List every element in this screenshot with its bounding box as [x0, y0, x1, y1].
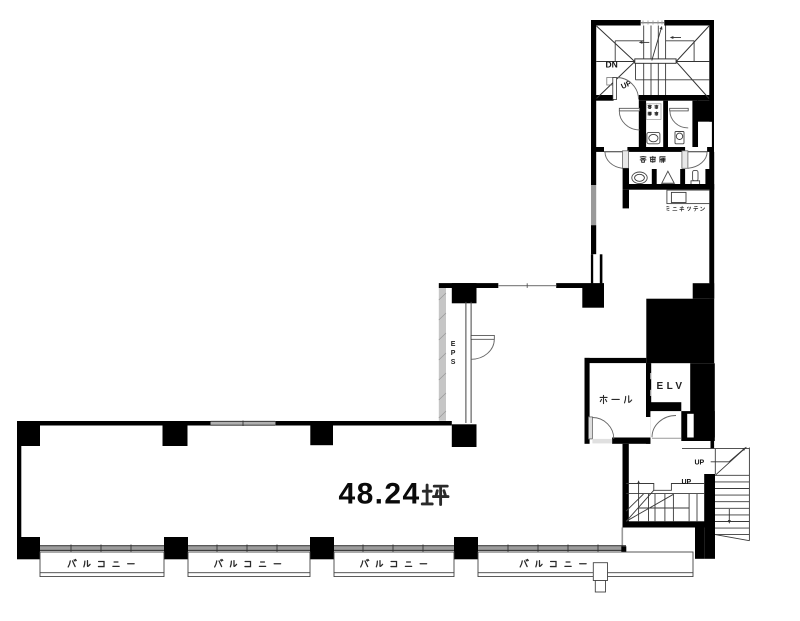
svg-text:UP: UP	[695, 460, 705, 467]
svg-text:S: S	[451, 359, 456, 366]
svg-text:UP: UP	[682, 479, 692, 486]
svg-text:E: E	[451, 341, 456, 348]
svg-text:ELV: ELV	[657, 381, 686, 392]
svg-text:DN: DN	[606, 60, 618, 70]
svg-text:P: P	[451, 350, 456, 357]
svg-text:48.24: 48.24	[339, 478, 421, 511]
